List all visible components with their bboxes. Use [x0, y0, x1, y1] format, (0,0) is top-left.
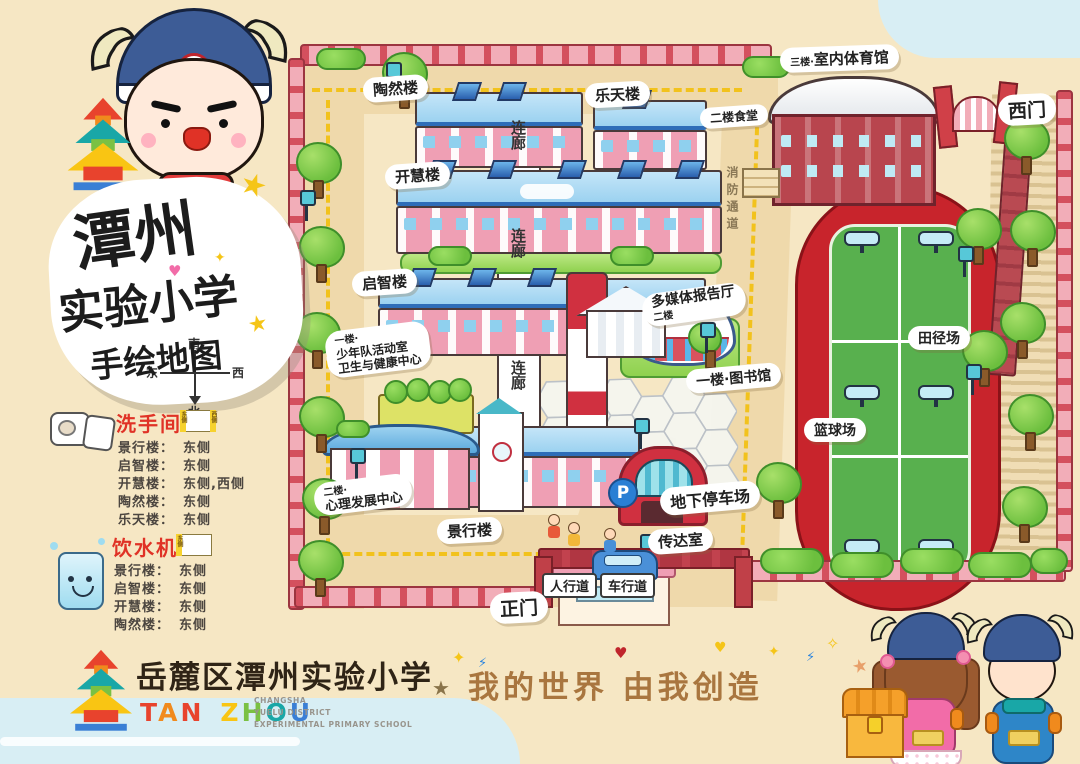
- sparkle-icon: ✦: [452, 648, 465, 667]
- sparkle-icon: ✧: [826, 634, 839, 653]
- west-gate-arch: [952, 96, 1000, 132]
- basketball-hoop: [844, 385, 880, 400]
- bush: [760, 548, 824, 574]
- side-value: 东侧: [183, 459, 211, 474]
- clock-tower: [478, 412, 524, 512]
- qizhi-label: 启智楼: [351, 268, 418, 297]
- watermark-bubble: [520, 184, 574, 199]
- bush: [1030, 548, 1068, 574]
- star-icon: ✦: [214, 250, 226, 266]
- clock-face: [492, 442, 512, 462]
- basketball-hoop: [844, 231, 880, 246]
- water-row: 开慧楼：东侧: [114, 596, 207, 615]
- bush: [968, 552, 1032, 578]
- street-lamp: [700, 322, 712, 353]
- basketball-hoop: [918, 231, 954, 246]
- side-value: 东侧,西侧: [183, 477, 245, 492]
- building-name: 陶然楼：: [114, 618, 170, 633]
- pinyin-letter: A: [158, 698, 180, 727]
- water-row: 景行楼：东侧: [114, 560, 207, 579]
- street-lamp: [966, 364, 978, 395]
- star-icon: ★: [850, 654, 871, 678]
- corridor-label-1: 连廊: [508, 120, 529, 150]
- road-dash-bottom: [318, 552, 568, 556]
- water-row: 陶然楼：东侧: [114, 614, 207, 633]
- slogan-text: 我的世界 由我创造: [468, 662, 763, 707]
- water-row: 启智楼：东侧: [114, 578, 207, 597]
- pedestrian: [568, 522, 580, 546]
- tree: [298, 540, 342, 597]
- school-en-line3: EXPERIMENTAL PRIMARY SCHOOL: [254, 720, 412, 729]
- track-label: 田径场: [908, 326, 970, 350]
- tree: [299, 226, 343, 283]
- building-name: 景行楼：: [114, 564, 170, 579]
- window-row: [404, 218, 714, 230]
- pedestrian: [548, 514, 560, 538]
- lightning-icon: ⚡: [806, 650, 815, 665]
- multimedia-floor: 二楼: [653, 310, 674, 324]
- court-line-v: [898, 227, 901, 573]
- restroom-row: 启智楼：东侧: [118, 455, 211, 474]
- pagoda-logo: [58, 644, 144, 740]
- hair-flower: [956, 650, 971, 665]
- gym-window-row: [781, 135, 927, 147]
- window-row: [601, 140, 699, 152]
- bush: [316, 48, 366, 70]
- side-value: 东侧: [183, 513, 211, 528]
- building-name: 陶然楼：: [118, 495, 174, 510]
- basketball-hoop: [918, 385, 954, 400]
- gym-floor: 三楼·: [790, 57, 814, 69]
- tree: [1004, 118, 1048, 175]
- boy-character: [972, 614, 1072, 764]
- restroom-diagram: 东侧 西侧: [180, 410, 216, 432]
- tree: [1010, 210, 1054, 267]
- restroom-row: 景行楼：东侧: [118, 437, 211, 456]
- side-value: 东侧: [183, 495, 211, 510]
- bush: [830, 552, 894, 578]
- side-value: 东侧: [179, 564, 207, 579]
- gym-window-row: [781, 165, 927, 177]
- tree: [1008, 394, 1052, 451]
- restroom-row: 乐天楼：东侧: [118, 509, 211, 528]
- gym-name: 室内体育馆: [814, 48, 890, 69]
- restroom-row: 开慧楼：东侧,西侧: [118, 473, 245, 492]
- kaihui-label: 开慧楼: [384, 161, 451, 190]
- pinyin-letter: Z: [220, 698, 241, 727]
- jingxing-label: 景行楼: [436, 516, 502, 544]
- building-name: 开慧楼：: [118, 477, 174, 492]
- diagram-east: 东侧: [180, 410, 186, 432]
- diagram-east: 东侧: [176, 534, 182, 556]
- school-map-poster: 连廊 连廊 连廊: [0, 0, 1080, 764]
- compass-west: 西: [232, 364, 244, 381]
- pedestrian: [604, 528, 616, 552]
- treasure-chest: [842, 688, 906, 760]
- side-value: 东侧: [179, 618, 207, 633]
- bush: [610, 246, 654, 266]
- basketball-label: 篮球场: [804, 418, 866, 442]
- heart-icon: ♥: [714, 640, 727, 656]
- court-field: [829, 224, 971, 576]
- school-name-cn: 岳麓区潭州实验小学: [136, 652, 433, 697]
- sidewalk-sign: 人行道: [542, 573, 597, 598]
- car-window: [604, 555, 642, 566]
- tree: [756, 462, 800, 519]
- star-icon: ★: [432, 676, 450, 700]
- restroom-row: 陶然楼：东侧: [118, 491, 211, 510]
- corridor-label-3: 连廊: [508, 360, 529, 390]
- tree: [1002, 486, 1046, 543]
- wave-line: [0, 737, 300, 746]
- gym-steps: [742, 168, 780, 198]
- roadway-sign: 车行道: [600, 573, 655, 598]
- fence-right: [1056, 90, 1073, 572]
- street-lamp: [350, 448, 362, 479]
- reception-label: 传达室: [647, 526, 714, 555]
- restroom-title: 洗手间: [116, 408, 182, 437]
- sparkle-icon: ✦: [768, 644, 780, 660]
- planter-bush: [406, 378, 430, 402]
- school-en-line2: YUELU DISTRICT: [254, 708, 331, 717]
- street-lamp: [958, 246, 970, 277]
- fence-top: [300, 44, 772, 66]
- letian-label: 乐天楼: [584, 80, 650, 108]
- main-gate-label: 正门: [489, 591, 549, 625]
- building-name: 开慧楼：: [114, 600, 170, 615]
- sky-blob: [878, 0, 1080, 58]
- heart-icon: ♥: [614, 644, 627, 662]
- side-value: 东侧: [179, 600, 207, 615]
- building-name: 启智楼：: [118, 459, 174, 474]
- planter-bush: [384, 380, 408, 404]
- main-gate-pillar: [734, 556, 753, 608]
- side-value: 东侧: [179, 582, 207, 597]
- corridor-label-2: 连廊: [508, 228, 529, 258]
- boy-backpack: [992, 700, 1054, 764]
- west-gate-label: 西门: [997, 93, 1057, 127]
- diagram-west: 西侧: [210, 410, 216, 432]
- parking-p-badge: P: [608, 478, 638, 508]
- building-name: 景行楼：: [118, 441, 174, 456]
- building-name: 启智楼：: [114, 582, 170, 597]
- water-title: 饮水机: [112, 532, 178, 561]
- pinyin-letter: T: [140, 698, 158, 727]
- taoran-label: 陶然楼: [362, 74, 429, 103]
- school-en-line1: CHANGSHA: [254, 696, 306, 705]
- lightning-icon: ⚡: [478, 656, 487, 671]
- water-diagram: 东侧: [176, 534, 212, 556]
- hair-flower: [880, 654, 895, 669]
- bush: [336, 420, 370, 438]
- window-row: [423, 136, 575, 148]
- heart-icon: ♥: [168, 262, 181, 280]
- fire-lane-label: 消防通道: [724, 166, 741, 234]
- building-name: 乐天楼：: [118, 513, 174, 528]
- gym-label: 三楼·室内体育馆: [780, 44, 900, 73]
- pinyin-letter: N: [180, 698, 204, 727]
- street-lamp: [634, 418, 646, 449]
- bush: [900, 548, 964, 574]
- planter-bush: [448, 378, 472, 402]
- mascot-mouth: [183, 127, 211, 151]
- side-value: 东侧: [183, 441, 211, 456]
- bush: [428, 246, 472, 266]
- gym-body: [772, 114, 936, 206]
